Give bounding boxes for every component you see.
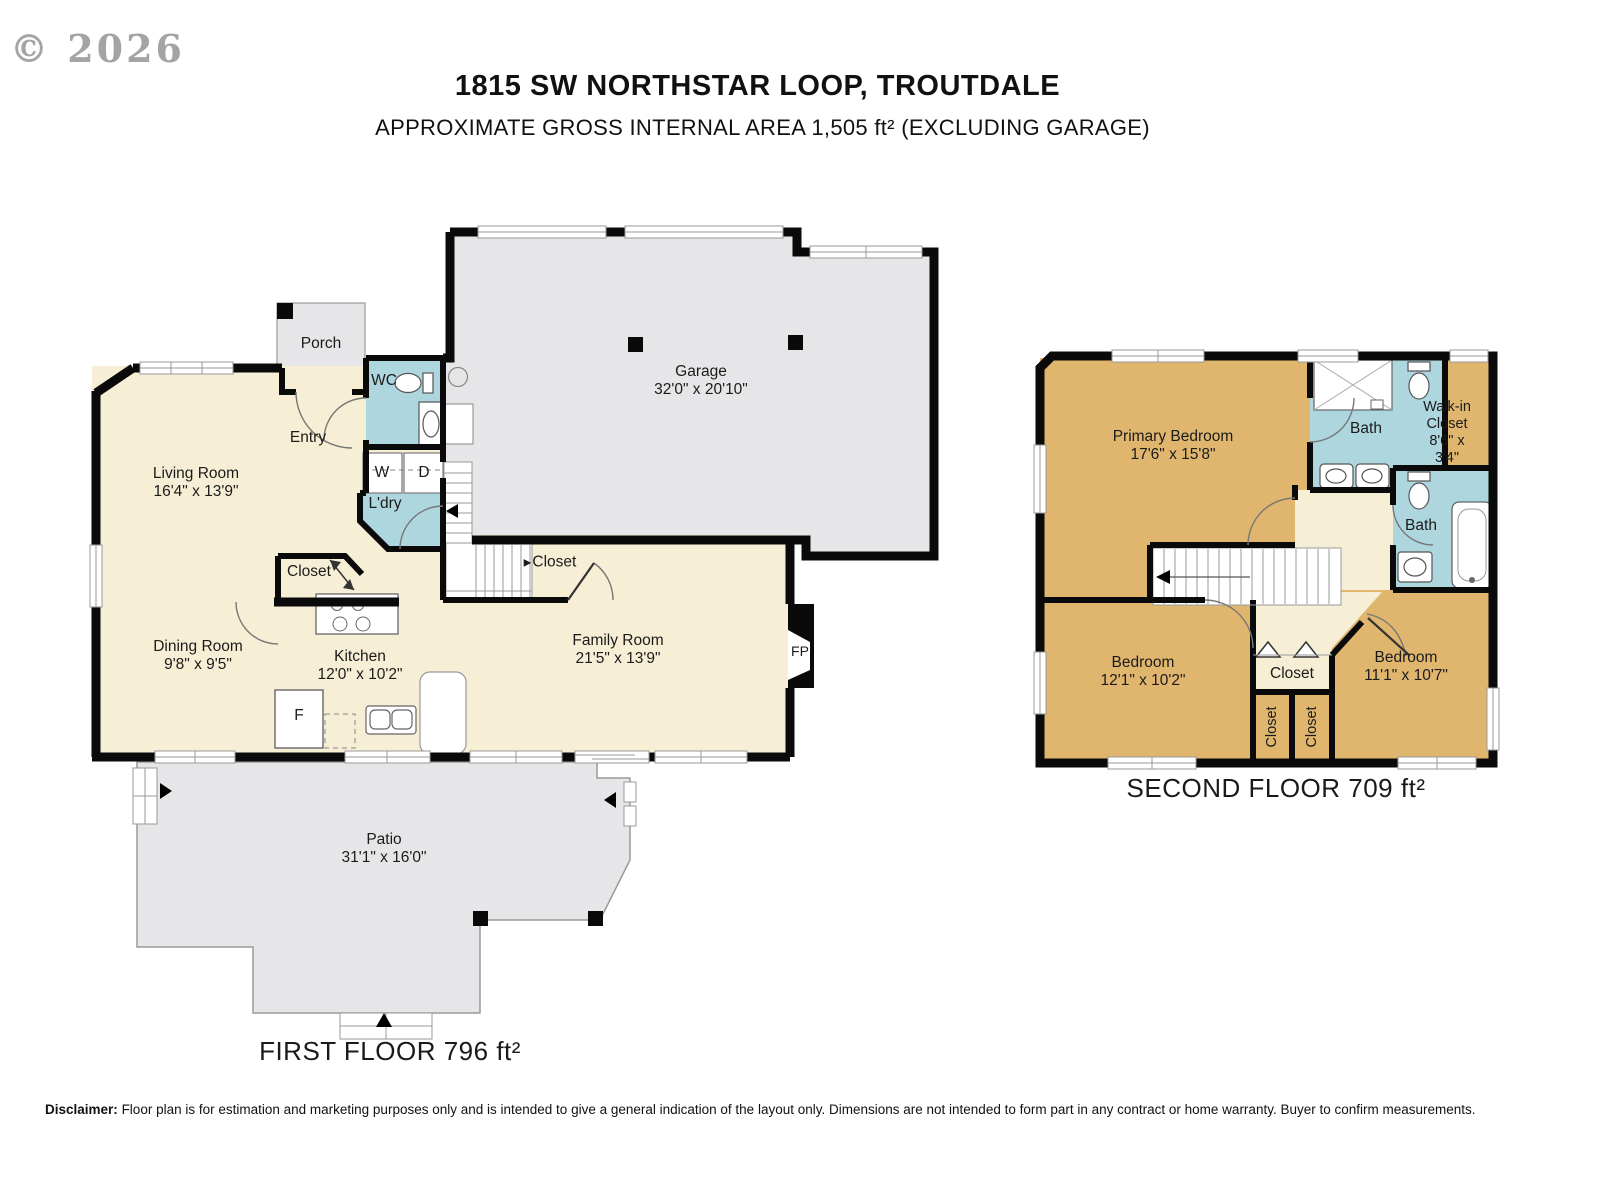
room-label-garage: Garage 32'0" x 20'10": [654, 363, 748, 399]
room-dims: 12'0" x 10'2": [317, 666, 402, 684]
room-label-family: Family Room 21'5" x 13'9": [572, 632, 663, 668]
toilet-icon-bath-top: [1408, 362, 1430, 399]
room-label-bath-top: Bath: [1350, 420, 1382, 438]
room-name: Bedroom: [1364, 649, 1448, 667]
room-dims: 16'4" x 13'9": [153, 483, 239, 501]
first-floor-plan: [90, 226, 934, 1039]
kitchen-sink-icon: [366, 706, 416, 734]
room-label-porch: Porch: [301, 335, 342, 353]
room-dims: 12'1" x 10'2": [1100, 672, 1185, 690]
fireplace-label: FP: [791, 642, 809, 660]
room-label-closet-right: Closet: [1303, 706, 1321, 747]
landing-floor2: [1295, 490, 1393, 546]
kitchen-counter: [420, 672, 466, 754]
fridge-label: F: [294, 707, 303, 725]
sink-icon-bath-right: [1398, 552, 1432, 582]
page-title: 1815 SW NORTHSTAR LOOP, TROUTDALE: [0, 70, 1515, 103]
disclaimer: Disclaimer: Floor plan is for estimation…: [45, 1102, 1555, 1117]
toilet-icon-bath-right: [1408, 472, 1430, 509]
room-label-primary: Primary Bedroom 17'6" x 15'8": [1113, 428, 1234, 464]
room-label-wc: WC: [371, 372, 397, 390]
room-name: Patio: [341, 831, 426, 849]
room-dims: 21'5" x 13'9": [572, 650, 663, 668]
room-label-entry: Entry: [290, 429, 326, 447]
shower-icon: [1314, 360, 1392, 410]
bathtub-icon: [1452, 502, 1492, 588]
room-name: Closet: [532, 554, 576, 571]
room-name: Walk-in Closet: [1418, 399, 1476, 433]
room-dims: 11'1" x 10'7": [1364, 667, 1448, 685]
room-label-patio: Patio 31'1" x 16'0": [341, 831, 426, 867]
room-label-closet-hall2: Closet: [1270, 665, 1314, 683]
room-dims: 9'8" x 9'5": [153, 656, 243, 674]
washer-label: W: [375, 464, 390, 482]
room-name: Primary Bedroom: [1113, 428, 1234, 446]
disclaimer-text: Floor plan is for estimation and marketi…: [122, 1102, 1476, 1117]
disclaimer-label: Disclaimer:: [45, 1102, 118, 1117]
room-label-closet-stairs: ▶Closet: [524, 554, 577, 573]
room-label-dining: Dining Room 9'8" x 9'5": [153, 638, 243, 674]
room-dims: 8'6" x 3'4": [1418, 433, 1476, 467]
room-name: Family Room: [572, 632, 663, 650]
room-label-kitchen: Kitchen 12'0" x 10'2": [317, 648, 402, 684]
room-name: Living Room: [153, 465, 239, 483]
room-label-laundry: L'dry: [368, 495, 401, 513]
floorplan-canvas: [0, 0, 1600, 1200]
room-name: Kitchen: [317, 648, 402, 666]
room-label-bath-right: Bath: [1405, 517, 1437, 535]
copyright-watermark: © 2026: [10, 26, 185, 71]
second-floor-area-label: SECOND FLOOR 709 ft²: [1127, 773, 1426, 804]
room-dims: 32'0" x 20'10": [654, 381, 748, 399]
room-label-living: Living Room 16'4" x 13'9": [153, 465, 239, 501]
room-label-closet-hall: Closet: [287, 563, 331, 581]
toilet-icon: [395, 373, 433, 393]
room-name: Dining Room: [153, 638, 243, 656]
room-name: Bedroom: [1100, 654, 1185, 672]
room-label-bedroom-right: Bedroom 11'1" x 10'7": [1364, 649, 1448, 685]
right-arrow-icon: ▶: [524, 558, 532, 569]
patio-floor: [137, 762, 630, 1013]
room-label-bedroom-left: Bedroom 12'1" x 10'2": [1100, 654, 1185, 690]
room-label-closet-left: Closet: [1263, 706, 1281, 747]
room-dims: 31'1" x 16'0": [341, 849, 426, 867]
utility-box: [445, 404, 473, 444]
wc-sink-icon: [419, 402, 443, 446]
staircase-floor2: [1153, 548, 1341, 605]
dryer-label: D: [418, 464, 429, 482]
room-label-walkin: Walk-in Closet 8'6" x 3'4": [1418, 399, 1476, 467]
room-dims: 17'6" x 15'8": [1113, 446, 1234, 464]
page-subtitle: APPROXIMATE GROSS INTERNAL AREA 1,505 ft…: [0, 115, 1525, 141]
first-floor-area-label: FIRST FLOOR 796 ft²: [259, 1036, 521, 1067]
room-name: Garage: [654, 363, 748, 381]
